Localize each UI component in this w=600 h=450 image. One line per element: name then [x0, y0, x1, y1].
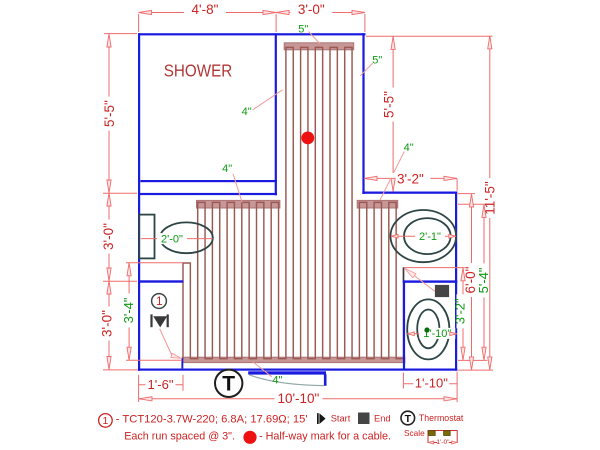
svg-text:1'-6": 1'-6"	[148, 377, 174, 392]
svg-text:End: End	[374, 414, 391, 424]
svg-text:3'-0": 3'-0"	[101, 223, 116, 250]
svg-text:2'-1": 2'-1"	[419, 231, 441, 243]
svg-text:T: T	[405, 413, 412, 425]
svg-text:5'-4": 5'-4"	[476, 267, 491, 293]
svg-text:10'-10": 10'-10"	[277, 391, 319, 406]
svg-text:5": 5"	[298, 24, 308, 36]
svg-text:3'-2": 3'-2"	[397, 172, 424, 187]
svg-text:T: T	[222, 373, 235, 396]
svg-text:4": 4"	[404, 142, 414, 154]
svg-text:1: 1	[156, 296, 162, 308]
svg-text:4": 4"	[272, 375, 282, 387]
svg-text:1'-0": 1'-0"	[437, 439, 451, 446]
svg-text:1'-10": 1'-10"	[415, 376, 449, 391]
svg-text:1: 1	[102, 415, 108, 427]
svg-text:SHOWER: SHOWER	[164, 61, 233, 80]
svg-text:5'-5": 5'-5"	[102, 100, 117, 127]
svg-text:3'-2": 3'-2"	[453, 298, 468, 324]
svg-text:5": 5"	[372, 54, 382, 66]
svg-text:2'-0": 2'-0"	[161, 233, 183, 245]
svg-text:3'-0": 3'-0"	[99, 310, 114, 337]
svg-text:- Half-way mark for a cable.: - Half-way mark for a cable.	[259, 431, 391, 443]
svg-text:3'-0": 3'-0"	[298, 2, 325, 17]
svg-text:4": 4"	[242, 106, 252, 118]
svg-text:5'-5": 5'-5"	[382, 91, 397, 118]
svg-text:- TCT120-3.7W-220; 6.8A; 17.69: - TCT120-3.7W-220; 6.8A; 17.69Ω; 15'	[116, 414, 308, 426]
svg-text:3'-4": 3'-4"	[121, 297, 136, 323]
svg-text:4'-8": 4'-8"	[192, 2, 219, 17]
svg-text:4": 4"	[222, 163, 232, 175]
svg-text:Scale: Scale	[404, 428, 425, 438]
svg-text:Each run spaced @ 3".: Each run spaced @ 3".	[124, 431, 235, 443]
svg-text:Start: Start	[331, 414, 351, 424]
svg-text:Thermostat: Thermostat	[419, 413, 464, 423]
